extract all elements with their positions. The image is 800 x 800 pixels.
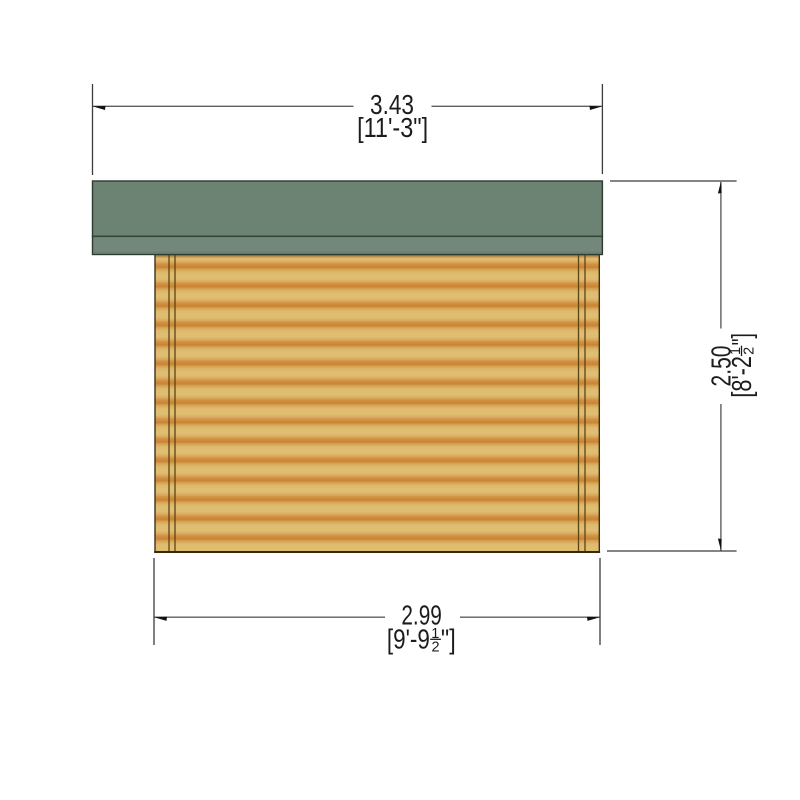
svg-text:[8'-2: [8'-2 — [726, 356, 757, 398]
svg-text:[9'-9: [9'-9 — [387, 624, 430, 655]
svg-text:[11'-3"]: [11'-3"] — [357, 112, 428, 143]
svg-text:"]: "] — [726, 333, 757, 345]
svg-text:2: 2 — [431, 639, 439, 655]
svg-text:"]: "] — [441, 624, 456, 655]
svg-text:2: 2 — [742, 347, 758, 355]
